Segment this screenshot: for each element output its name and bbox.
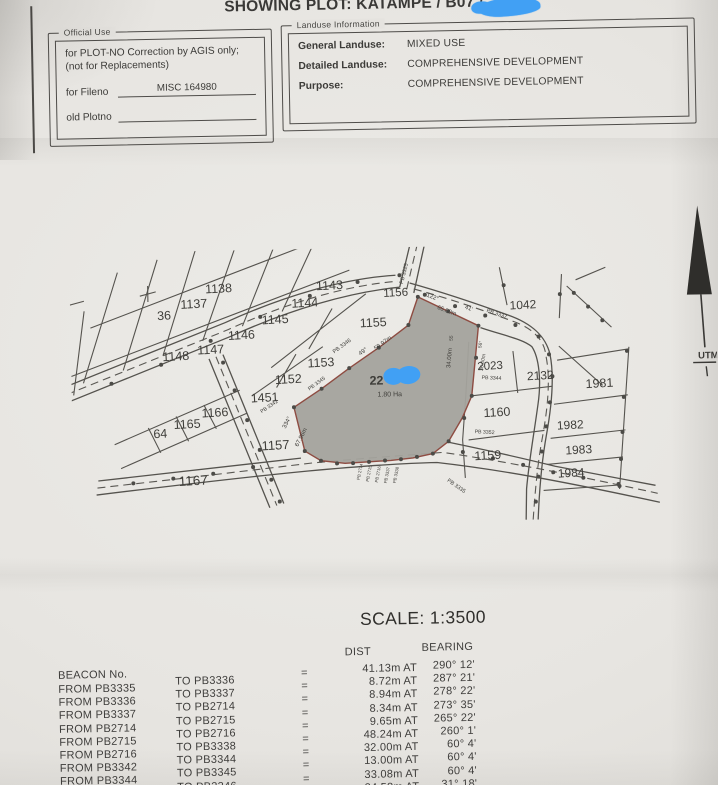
landuse-row-general: General Landuse: MIXED USE: [298, 34, 678, 52]
beacon-cell: TO PB2715: [176, 714, 236, 728]
fileno-label: for Fileno: [66, 87, 118, 99]
beacon-cell: TO PB3336: [175, 674, 235, 688]
beacon-cell: 8.94m AT: [323, 688, 417, 703]
map-label: 1983: [565, 442, 593, 457]
beacon-cell: =: [303, 773, 310, 785]
map-label: 1165: [173, 417, 201, 432]
map-label: 1152: [274, 372, 302, 387]
beacon-cell: =: [303, 759, 310, 772]
map-label: 1982: [557, 417, 585, 432]
map-label: PB 3337: [486, 308, 508, 321]
map-label: 64: [153, 426, 168, 441]
map-label: 1146: [228, 328, 256, 343]
beacon-cell: =: [301, 680, 308, 693]
map-label: 1145: [261, 312, 289, 327]
beacon-dot: [558, 292, 562, 296]
map-label: 334°: [282, 415, 293, 429]
map-label: 1144: [291, 295, 319, 310]
beacon-cell: TO PB2714: [176, 701, 236, 715]
map-label: 1157: [261, 437, 290, 453]
table-header-bearing: BEARING: [421, 641, 473, 654]
beacon-dot: [513, 323, 517, 327]
beacon-cell: 287° 21': [416, 672, 475, 686]
map-label: PB 2714: [356, 463, 364, 481]
beacon-column-bearing: 290° 12'287° 21'278° 22'273° 35'265° 22'…: [416, 659, 478, 785]
beacon-cell: 34.58m AT: [325, 781, 419, 785]
beacon-cell: 290° 12': [416, 659, 475, 673]
beacon-dot: [269, 478, 273, 482]
map-label: 1137: [180, 296, 208, 311]
map-label: 2132: [527, 368, 555, 383]
old-plotno-label: old Plotno: [66, 112, 118, 124]
beacon-cell: FROM PB3344: [60, 775, 138, 785]
map-label: PB 3352: [474, 429, 494, 436]
beacon-cell: =: [302, 707, 309, 720]
beacon-cell: TO PB3344: [177, 754, 237, 768]
map-label: PB 2716: [374, 465, 382, 483]
beacon-cell: TO PB3346: [177, 780, 237, 785]
beacon-dot: [586, 305, 590, 309]
north-arrow-head: [685, 205, 712, 294]
beacon-cell: TO PB3338: [176, 740, 236, 754]
map-label: 1167: [178, 472, 208, 489]
map-label: 1147: [197, 342, 225, 357]
fileno-row: for Fileno MISC 164980: [66, 81, 256, 99]
map-label: 22: [369, 374, 383, 388]
north-arrow-stem-lower: [706, 366, 707, 376]
beacon-dot: [211, 472, 215, 476]
map-label: 1984: [557, 465, 585, 480]
scanned-survey-document: SHOWING PLOT: KATAMPE / B07 / Official U…: [0, 0, 718, 785]
beacon-column-to: TO PB3336TO PB3337TO PB2714TO PB2715TO P…: [175, 674, 237, 785]
beacon-cell: =: [301, 693, 308, 706]
beacon-cell: 60° 4': [418, 764, 477, 778]
official-use-legend: Official Use: [59, 27, 116, 38]
map-label: 36: [157, 308, 172, 323]
beacon-dot: [221, 361, 225, 365]
utm-label: UTM: [698, 350, 717, 361]
beacon-cell: 273° 35': [417, 698, 476, 712]
detailed-landuse-label: Detailed Landuse:: [298, 59, 404, 72]
landuse-inner: General Landuse: MIXED USE Detailed Land…: [288, 26, 690, 125]
beacon-column-equals: ==========: [301, 667, 310, 785]
purpose-value: COMPREHENSIVE DEVELOPMENT: [408, 76, 584, 90]
scale-label: SCALE: 1:3500: [360, 607, 486, 630]
beacon-dot: [131, 481, 135, 485]
beacon-cell: 265° 22': [417, 712, 476, 726]
map-label: PB 3335: [446, 478, 467, 495]
official-use-inner: for PLOT-NO Correction by AGIS only; (no…: [55, 37, 267, 140]
beacon-dot: [278, 500, 282, 504]
beacon-cell: TO PB3345: [177, 767, 237, 781]
map-label: 1153: [307, 355, 335, 370]
map-label: 41': [464, 305, 473, 313]
old-plotno-row: old Plotno: [66, 106, 256, 124]
map-label: 1.80 Ha: [377, 391, 402, 398]
north-arrow-stem: [701, 294, 705, 347]
cadastral-map: 3611371138114311441145114611471148115611…: [69, 242, 664, 528]
map-label: PB 3337: [383, 466, 391, 484]
map-label: 1042: [509, 297, 537, 312]
beacon-cell: =: [301, 667, 308, 680]
beacon-cell: FROM PB3337: [59, 709, 137, 724]
beacon-cell: 260° 1': [417, 725, 476, 739]
map-label: PB 3346: [332, 338, 353, 355]
map-label: 1160: [483, 405, 511, 420]
beacon-dot: [600, 318, 604, 322]
landuse-legend: Landuse Information: [292, 18, 385, 30]
map-label: 1155: [359, 315, 387, 330]
beacon-column-from: FROM PB3335FROM PB3336FROM PB3337FROM PB…: [58, 682, 138, 785]
old-plotno-value: [118, 106, 256, 123]
page-title-text: SHOWING PLOT: KATAMPE / B07 /: [224, 0, 484, 16]
purpose-label: Purpose:: [299, 79, 405, 92]
map-label: 56°: [477, 340, 484, 348]
beacon-dot: [453, 304, 457, 308]
detailed-landuse-value: COMPREHENSIVE DEVELOPMENT: [407, 56, 583, 70]
general-landuse-label: General Landuse:: [298, 39, 404, 52]
beacon-cell: TO PB2716: [176, 727, 236, 741]
official-use-box: Official Use for PLOT-NO Correction by A…: [48, 29, 274, 147]
map-label: 1981: [585, 376, 614, 391]
beacon-column-dist: 41.13m AT8.72m AT8.94m AT8.34m AT9.65m A…: [323, 662, 420, 785]
document-content: SHOWING PLOT: KATAMPE / B07 / Official U…: [0, 0, 718, 785]
table-header-dist: DIST: [345, 646, 371, 659]
map-label: 1143: [316, 278, 344, 293]
map-label: 1159: [474, 448, 502, 463]
north-arrow: UTM: [682, 201, 717, 377]
map-label: 1166: [201, 405, 229, 420]
beacon-dot: [356, 280, 360, 284]
beacon-cell: =: [302, 746, 309, 759]
beacon-cell: TO PB3337: [175, 688, 235, 702]
beacon-cell: FROM PB2714: [59, 722, 137, 737]
redaction-scribble-title-lobe: [471, 1, 491, 13]
map-label: 1148: [162, 349, 190, 364]
beacon-cell: 31° 18': [418, 778, 477, 785]
map-label: PB 2715: [365, 464, 373, 482]
page-title: SHOWING PLOT: KATAMPE / B07 /: [224, 0, 484, 17]
frame-left-border-line: [30, 6, 35, 153]
beacon-cell: =: [302, 733, 309, 746]
landuse-row-purpose: Purpose: COMPREHENSIVE DEVELOPMENT: [299, 74, 679, 92]
map-label: 1138: [205, 281, 233, 296]
map-label: PB 3338: [392, 466, 400, 484]
beacon-cell: 60° 4': [417, 738, 476, 752]
map-label: 55: [448, 335, 454, 341]
map-label: PB 3344: [481, 375, 501, 382]
beacon-dot: [461, 450, 465, 454]
general-landuse-value: MIXED USE: [407, 38, 466, 50]
landuse-row-detailed: Detailed Landuse: COMPREHENSIVE DEVELOPM…: [298, 54, 678, 72]
table-header-beacon-no: BEACON No.: [58, 668, 127, 681]
beacon-cell: 278° 22': [416, 685, 475, 699]
landuse-info-box: Landuse Information General Landuse: MIX…: [281, 17, 697, 131]
beacon-cell: =: [302, 720, 309, 733]
map-label: 1156: [383, 287, 408, 300]
beacon-dot: [171, 477, 175, 481]
fileno-value: MISC 164980: [118, 81, 256, 98]
beacon-cell: 13.00m AT: [325, 754, 419, 769]
beacon-cell: 60° 4': [418, 751, 477, 765]
